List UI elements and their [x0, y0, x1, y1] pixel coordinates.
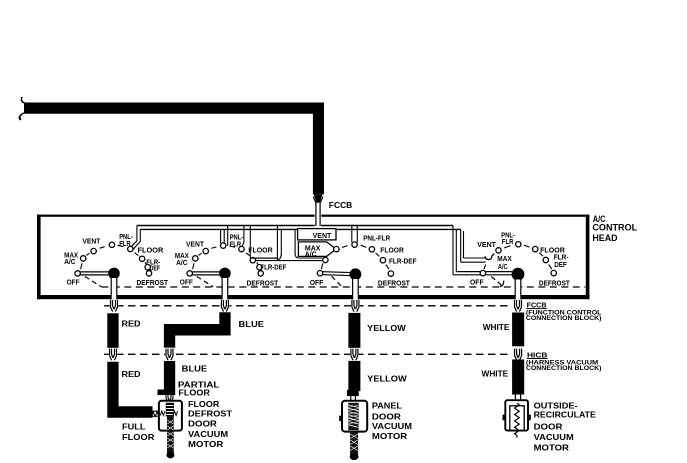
svg-text:BLUE: BLUE	[239, 320, 265, 329]
svg-text:WHITE: WHITE	[483, 322, 510, 332]
svg-text:FLOOR: FLOOR	[178, 389, 210, 398]
svg-text:DOOR: DOOR	[534, 421, 563, 431]
svg-text:A/C: A/C	[176, 258, 188, 267]
svg-text:FLOOR: FLOOR	[248, 245, 273, 254]
svg-text:VENT: VENT	[477, 240, 496, 249]
svg-text:DEF: DEF	[554, 260, 567, 269]
svg-text:HICB: HICB	[527, 350, 548, 359]
svg-text:VACUUM: VACUUM	[188, 429, 228, 439]
svg-text:YELLOW: YELLOW	[367, 323, 407, 333]
svg-text:DEFROST: DEFROST	[539, 279, 570, 288]
svg-text:MOTOR: MOTOR	[372, 431, 407, 441]
svg-text:MOTOR: MOTOR	[188, 439, 223, 449]
svg-text:FLR: FLR	[119, 239, 131, 248]
svg-text:CONTROL: CONTROL	[592, 223, 637, 233]
svg-text:VACUUM: VACUUM	[372, 421, 412, 431]
svg-text:OFF: OFF	[470, 278, 484, 287]
svg-text:OFF: OFF	[180, 278, 193, 287]
svg-text:FLR: FLR	[502, 237, 514, 246]
svg-text:RED: RED	[122, 370, 141, 379]
svg-text:A/C: A/C	[305, 251, 317, 258]
svg-text:VENT: VENT	[82, 237, 100, 246]
svg-text:OFF: OFF	[67, 278, 80, 287]
svg-text:DEFROST: DEFROST	[188, 409, 232, 419]
svg-text:FLOOR: FLOOR	[380, 245, 404, 254]
svg-text:FULL: FULL	[122, 422, 146, 432]
svg-text:DEFROST: DEFROST	[137, 278, 169, 287]
svg-text:DOOR: DOOR	[372, 411, 401, 421]
svg-text:WHITE: WHITE	[482, 368, 509, 378]
svg-text:PNL-FLR: PNL-FLR	[363, 233, 390, 242]
svg-text:FLR-DEF: FLR-DEF	[389, 256, 417, 265]
svg-text:MOTOR: MOTOR	[534, 442, 569, 452]
svg-text:RED: RED	[122, 320, 141, 329]
svg-text:FCCB: FCCB	[329, 201, 353, 210]
svg-text:OFF: OFF	[310, 278, 324, 287]
svg-text:VENT: VENT	[186, 239, 204, 248]
svg-text:YELLOW: YELLOW	[367, 374, 408, 384]
svg-text:VACUUM: VACUUM	[534, 432, 574, 442]
svg-text:FLR: FLR	[230, 239, 242, 248]
svg-text:DEFROST: DEFROST	[247, 278, 279, 287]
svg-text:HEAD: HEAD	[592, 233, 618, 243]
svg-text:RECIRCULATE: RECIRCULATE	[534, 410, 597, 420]
svg-text:FLOOR: FLOOR	[188, 399, 219, 409]
svg-text:PANEL: PANEL	[372, 401, 402, 411]
svg-text:BLUE: BLUE	[182, 364, 208, 373]
svg-text:CONNECTION BLOCK): CONNECTION BLOCK)	[526, 365, 602, 372]
svg-text:FLOOR: FLOOR	[122, 432, 154, 442]
svg-text:CONNECTION BLOCK): CONNECTION BLOCK)	[526, 315, 602, 322]
svg-text:DOOR: DOOR	[188, 419, 217, 429]
svg-text:A/C: A/C	[498, 262, 508, 271]
svg-text:FLR-DEF: FLR-DEF	[260, 262, 286, 271]
svg-text:DEFROST: DEFROST	[378, 279, 410, 288]
svg-text:DEF: DEF	[150, 263, 161, 272]
svg-text:A/C: A/C	[64, 257, 76, 266]
svg-text:VENT: VENT	[313, 231, 332, 240]
svg-text:FLOOR: FLOOR	[138, 245, 164, 254]
svg-text:FCCB: FCCB	[527, 300, 548, 309]
